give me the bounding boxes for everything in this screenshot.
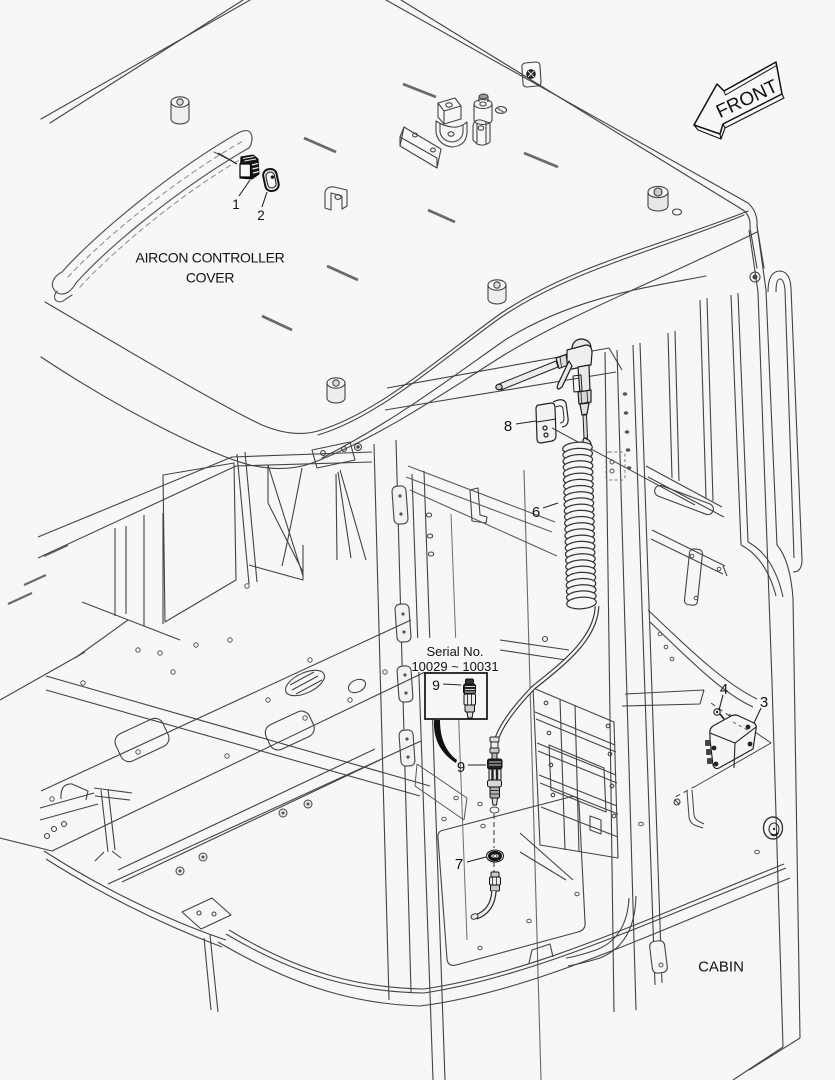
svg-text:4: 4 <box>720 681 728 698</box>
svg-text:9: 9 <box>432 677 440 693</box>
svg-text:AIRCON CONTROLLER: AIRCON CONTROLLER <box>136 250 285 266</box>
svg-text:COVER: COVER <box>186 270 234 286</box>
svg-text:10029 ~ 10031: 10029 ~ 10031 <box>411 659 498 674</box>
svg-text:7: 7 <box>455 856 463 873</box>
svg-text:3: 3 <box>760 694 768 711</box>
svg-text:2: 2 <box>257 208 265 223</box>
svg-text:6: 6 <box>532 504 540 521</box>
svg-text:Serial No.: Serial No. <box>426 644 483 659</box>
svg-text:9: 9 <box>457 759 465 776</box>
svg-text:CABIN: CABIN <box>698 959 744 976</box>
svg-text:8: 8 <box>504 418 512 435</box>
svg-text:1: 1 <box>232 197 240 212</box>
